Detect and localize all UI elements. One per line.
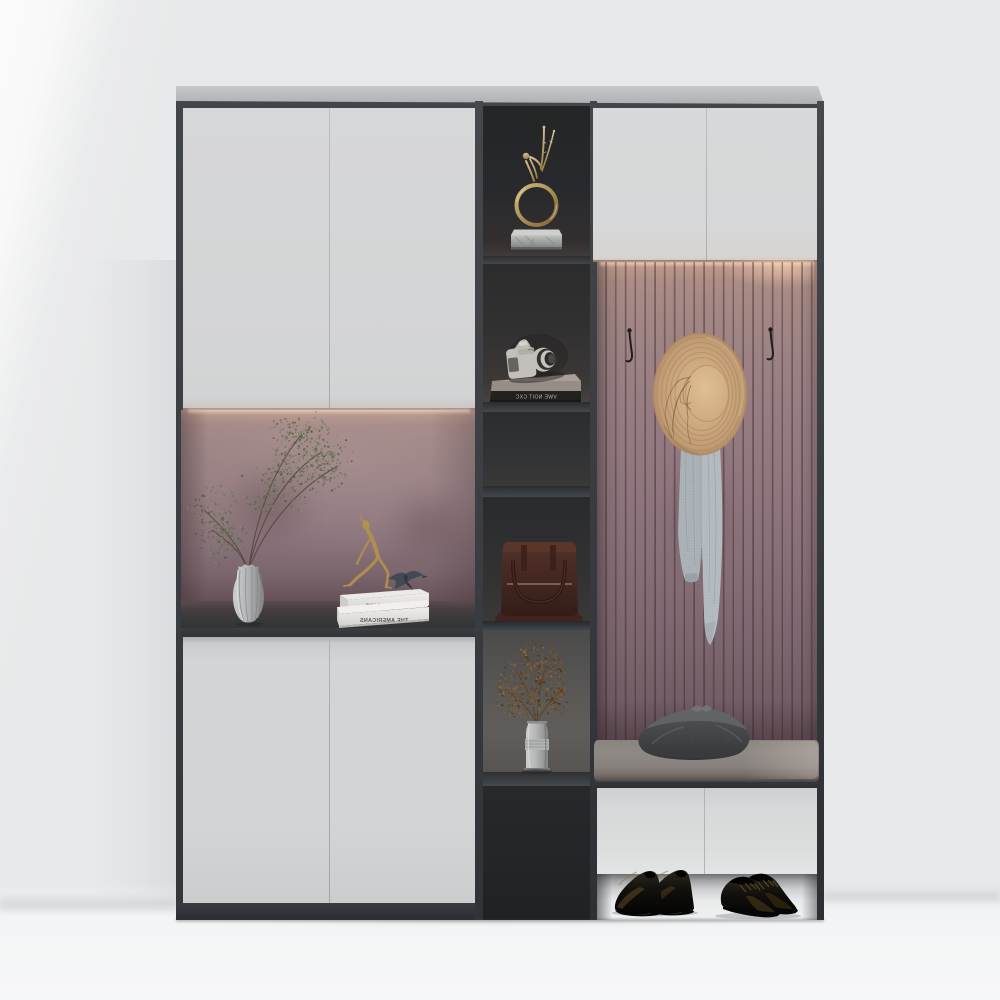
- svg-text:VWE NOIT CXC: VWE NOIT CXC: [515, 395, 556, 401]
